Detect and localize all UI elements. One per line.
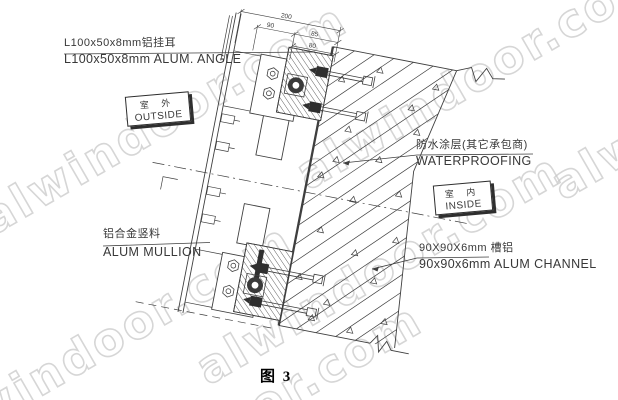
- dim-label: 80: [308, 42, 317, 50]
- wall-top-break: [455, 63, 506, 87]
- inside-reference-box: 室 内 INSIDE: [433, 181, 493, 216]
- outside-reference-box: 室 外 OUTSIDE: [125, 91, 191, 126]
- label-alum-angle-en: L100x50x8mm ALUM. ANGLE: [64, 52, 241, 66]
- dim-label: 200: [280, 12, 292, 21]
- dim-label: 85: [310, 30, 319, 38]
- reference-corner-mark: [161, 177, 178, 193]
- label-waterproofing-cn: 防水涂层(其它承包商): [416, 139, 532, 152]
- cad-detail-page: alwindoor.com alwindoor.com alwindoor.co…: [0, 0, 618, 400]
- label-alum-angle-cn: L100x50x8mm铝挂耳: [64, 37, 241, 50]
- mullion-clips: [201, 114, 241, 226]
- label-alum-mullion: 铝合金竖料 ALUM MULLION: [103, 228, 202, 259]
- dim-label: 90: [266, 22, 275, 30]
- wall-bottom-edge: [279, 325, 370, 343]
- stack-joint-sleeve-lower: [237, 204, 270, 248]
- label-waterproofing: 防水涂层(其它承包商) WATERPROOFING: [416, 139, 532, 168]
- label-alum-mullion-cn: 铝合金竖料: [103, 228, 202, 241]
- label-waterproofing-en: WATERPROOFING: [416, 154, 532, 168]
- figure-caption: 图 3: [260, 365, 292, 386]
- label-alum-channel-cn: 90X90X6mm 槽铝: [419, 242, 597, 255]
- wall-top-edge: [333, 47, 457, 71]
- label-alum-mullion-en: ALUM MULLION: [103, 245, 202, 259]
- anchor-bolt: [301, 99, 368, 123]
- bottom-bracket-assembly: [185, 233, 328, 329]
- label-alum-channel-en: 90x90x6mm ALUM CHANNEL: [419, 257, 597, 271]
- wall-bottom-break: [369, 334, 411, 357]
- label-alum-channel: 90X90X6mm 槽铝 90x90x6mm ALUM CHANNEL: [419, 242, 597, 271]
- label-alum-angle: L100x50x8mm铝挂耳 L100x50x8mm ALUM. ANGLE: [64, 37, 241, 66]
